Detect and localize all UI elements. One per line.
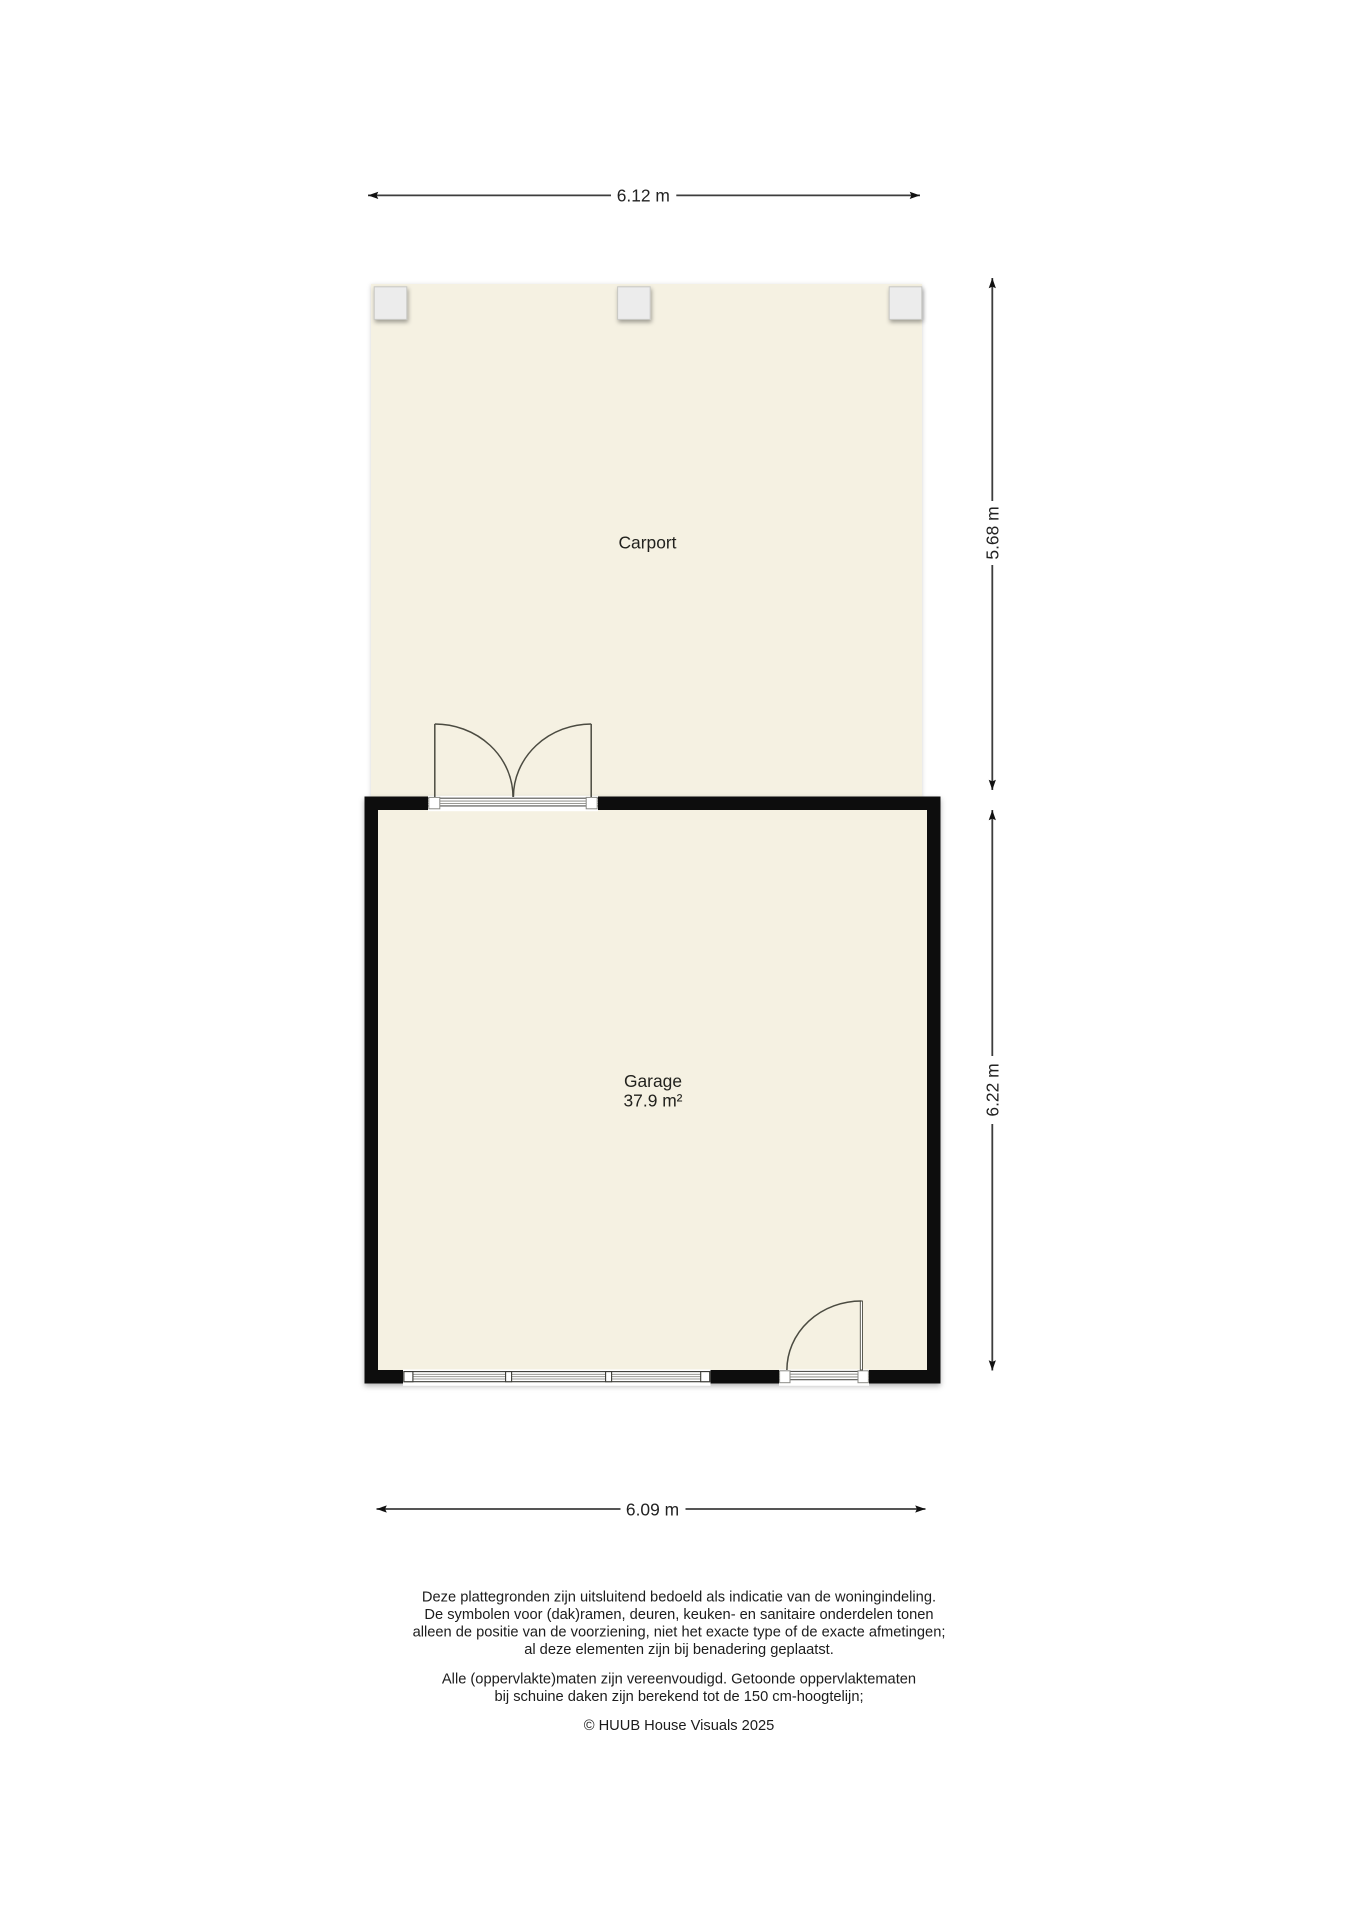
svg-text:5.68 m: 5.68 m — [983, 506, 1003, 559]
svg-text:bij schuine daken zijn bereken: bij schuine daken zijn berekend tot de 1… — [494, 1689, 863, 1705]
svg-text:6.12 m: 6.12 m — [617, 186, 670, 206]
svg-text:Alle (oppervlakte)maten zijn v: Alle (oppervlakte)maten zijn vereenvoudi… — [442, 1672, 916, 1688]
svg-text:Garage: Garage — [624, 1071, 682, 1091]
svg-text:Carport: Carport — [619, 533, 677, 553]
svg-text:alleen de positie van de voorz: alleen de positie van de voorziening, ni… — [413, 1625, 946, 1641]
svg-text:6.09 m: 6.09 m — [626, 1499, 679, 1519]
svg-text:© HUUB House Visuals 2025: © HUUB House Visuals 2025 — [584, 1718, 775, 1734]
svg-text:De symbolen voor (dak)ramen, d: De symbolen voor (dak)ramen, deuren, keu… — [424, 1607, 933, 1623]
svg-text:al deze elementen zijn bij ben: al deze elementen zijn bij benadering ge… — [524, 1642, 834, 1658]
svg-text:Deze plattegronden zijn uitslu: Deze plattegronden zijn uitsluitend bedo… — [422, 1590, 936, 1606]
svg-text:37.9 m²: 37.9 m² — [624, 1091, 683, 1111]
svg-text:6.22 m: 6.22 m — [983, 1063, 1003, 1116]
